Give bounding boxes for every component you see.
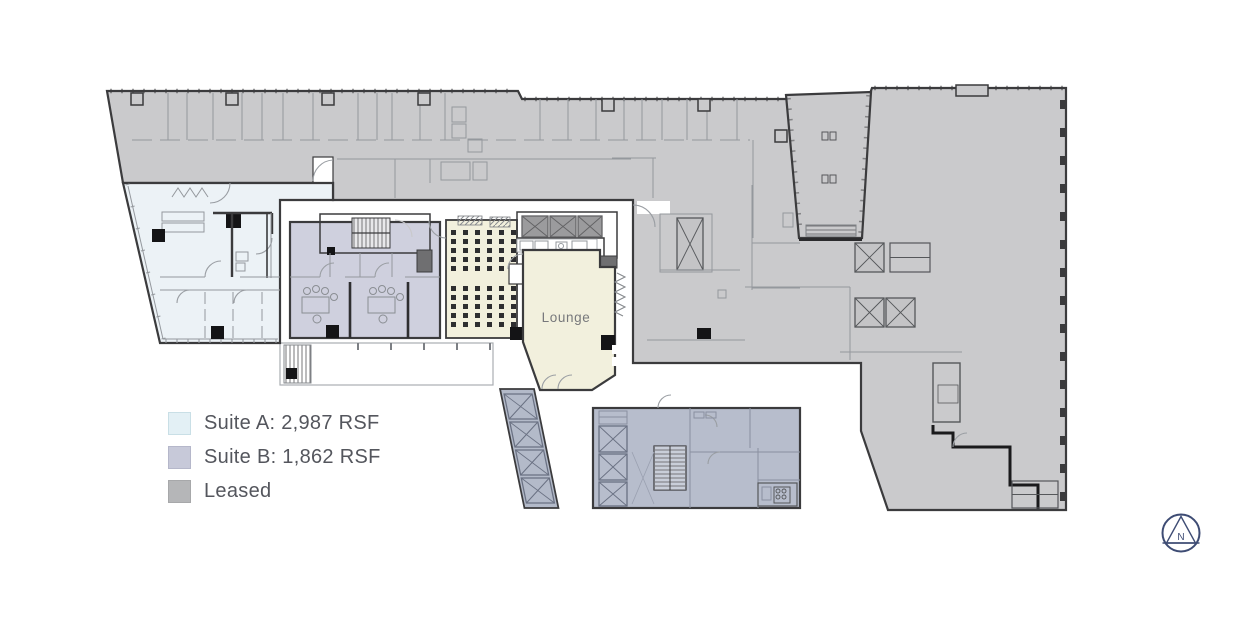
seating-room-outline (446, 220, 517, 338)
suite-b-region (290, 214, 440, 338)
core-wall-step (417, 250, 432, 272)
seat-square (511, 322, 516, 327)
column (326, 325, 339, 338)
seat-square (511, 239, 516, 244)
leased-swatch (168, 480, 191, 503)
folding-partition-zigzag (615, 273, 625, 316)
seat-square (475, 304, 480, 309)
seat-square (463, 304, 468, 309)
column (775, 130, 787, 142)
casework-hatch (806, 225, 856, 236)
legend: Suite A: 2,987 RSF Suite B: 1,862 RSF Le… (168, 406, 381, 508)
mullion-tick (1060, 268, 1066, 277)
seat-square (511, 304, 516, 309)
paver-mark (456, 343, 458, 350)
seating-room (429, 216, 525, 340)
lounge-region: Lounge (508, 250, 618, 390)
diagonal-elevator-bank (500, 389, 558, 508)
seat-square (499, 257, 504, 262)
mullion-tick (1060, 184, 1066, 193)
seat-square (451, 239, 456, 244)
suite-b-swatch (168, 446, 191, 469)
door-swing-arc (658, 395, 671, 408)
seat-square (499, 248, 504, 253)
seat-square (499, 239, 504, 244)
core-outline (593, 408, 800, 508)
seat-square (475, 322, 480, 327)
seat-square (451, 230, 456, 235)
mullion-tick (1060, 436, 1066, 445)
seat-square (499, 313, 504, 318)
terrace (280, 343, 493, 385)
column (602, 99, 614, 111)
suite-b-legend-label: Suite B: 1,862 RSF (204, 446, 381, 469)
mullion-tick (1060, 100, 1066, 109)
column (510, 327, 523, 340)
column (697, 328, 711, 339)
seat-square (487, 322, 492, 327)
mullion-tick (1060, 380, 1066, 389)
lounge-label: Lounge (542, 310, 591, 325)
seat-square (499, 286, 504, 291)
paver-mark (489, 343, 491, 350)
mullion-tick (1060, 212, 1066, 221)
column (698, 99, 710, 111)
wall-opening (612, 345, 618, 354)
seat-square (475, 248, 480, 253)
legend-row-suite-a: Suite A: 2,987 RSF (168, 406, 381, 440)
seat-square (475, 286, 480, 291)
mullion-tick (1060, 156, 1066, 165)
seat-square (463, 248, 468, 253)
seat-square (451, 304, 456, 309)
paver-mark (390, 343, 392, 350)
seat-square (487, 266, 492, 271)
seat-square (451, 322, 456, 327)
seat-square (487, 295, 492, 300)
bank-outline (500, 389, 558, 508)
elevator-shafts (522, 216, 602, 237)
mullion-tick (1060, 296, 1066, 305)
mullion-tick (1060, 128, 1066, 137)
seat-square (511, 248, 516, 253)
column (211, 326, 224, 339)
corridor-opening (637, 201, 670, 214)
north-arrow: N (1163, 515, 1200, 552)
seat-square (475, 230, 480, 235)
suite-a-swatch (168, 412, 191, 435)
floor-plan: Lounge (0, 0, 1260, 620)
seat-square (487, 248, 492, 253)
seat-square (487, 286, 492, 291)
column (152, 229, 165, 242)
leased-legend-label: Leased (204, 480, 271, 503)
seat-square (511, 295, 516, 300)
wall-accent (327, 247, 335, 255)
mullion-tick (1060, 240, 1066, 249)
mullion-tick (1060, 352, 1066, 361)
mullion-tick (1060, 492, 1066, 501)
column (286, 368, 297, 379)
building-core (593, 395, 800, 508)
seat-square (451, 286, 456, 291)
seat-square (499, 304, 504, 309)
mullion-tick (1060, 408, 1066, 417)
seat-square (475, 266, 480, 271)
seat-square (451, 257, 456, 262)
seat-square (511, 230, 516, 235)
column (226, 93, 238, 105)
seat-square (463, 257, 468, 262)
wall-opening (612, 357, 618, 366)
seat-square (463, 266, 468, 271)
legend-row-leased: Leased (168, 474, 381, 508)
leasing-floor-plan-page: Lounge (0, 0, 1260, 620)
seat-square (451, 266, 456, 271)
seat-square (487, 230, 492, 235)
seat-square (475, 295, 480, 300)
entry-notch (956, 85, 988, 96)
seat-square (451, 295, 456, 300)
seat-square (463, 322, 468, 327)
seat-square (499, 322, 504, 327)
legend-row-suite-b: Suite B: 1,862 RSF (168, 440, 381, 474)
column (322, 93, 334, 105)
paver-mark (423, 343, 425, 350)
paver-mark (357, 343, 359, 350)
column (418, 93, 430, 105)
suite-a-legend-label: Suite A: 2,987 RSF (204, 412, 380, 435)
seat-square (475, 313, 480, 318)
north-letter: N (1177, 532, 1184, 543)
seat-square (475, 239, 480, 244)
mullion-tick (1060, 464, 1066, 473)
terrace-outline (280, 343, 493, 385)
seat-square (499, 295, 504, 300)
seat-square (463, 230, 468, 235)
seat-square (487, 257, 492, 262)
seat-square (463, 313, 468, 318)
seat-square (511, 286, 516, 291)
seat-square (499, 230, 504, 235)
seat-square (487, 239, 492, 244)
seat-square (487, 304, 492, 309)
seat-square (487, 313, 492, 318)
column (226, 213, 241, 228)
seat-square (499, 266, 504, 271)
vent-hatch (458, 216, 482, 225)
seat-square (463, 295, 468, 300)
seat-square (451, 313, 456, 318)
seat-square (451, 248, 456, 253)
column (131, 93, 143, 105)
window-mullion-ticks (1060, 100, 1066, 501)
seat-square (511, 313, 516, 318)
vent-hatch (490, 217, 510, 227)
mullion-tick (1060, 324, 1066, 333)
seat-square (463, 239, 468, 244)
seat-square (475, 257, 480, 262)
glazed-meeting-room (786, 92, 871, 238)
seat-square (463, 286, 468, 291)
